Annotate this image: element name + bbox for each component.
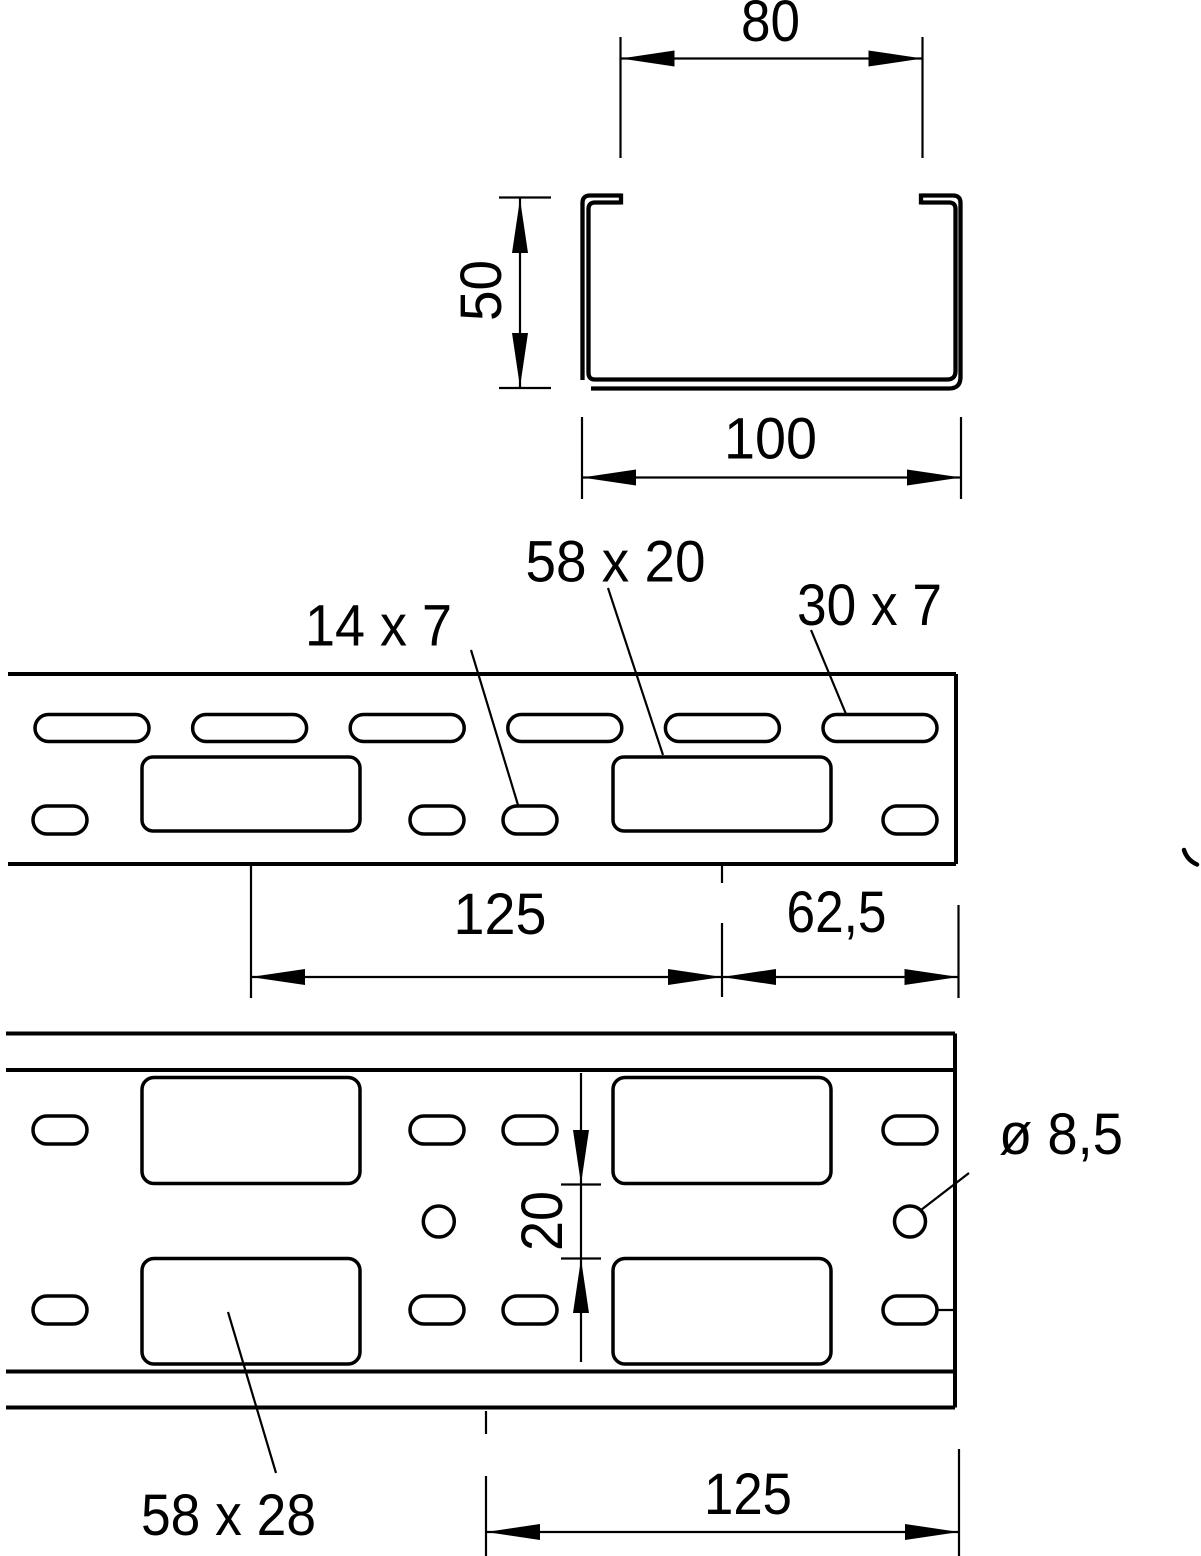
svg-text:20: 20: [510, 1191, 575, 1251]
svg-text:ø 8,5: ø 8,5: [999, 1102, 1123, 1167]
svg-text:58 x 28: 58 x 28: [141, 1483, 316, 1548]
svg-text:14 x 7: 14 x 7: [305, 594, 452, 659]
svg-text:30 x 7: 30 x 7: [797, 573, 942, 638]
svg-text:100: 100: [724, 407, 817, 472]
svg-text:62,5: 62,5: [787, 880, 887, 945]
svg-text:50: 50: [449, 260, 514, 321]
svg-text:125: 125: [454, 882, 547, 947]
svg-text:125: 125: [704, 1462, 792, 1527]
svg-text:80: 80: [741, 0, 800, 54]
svg-text:58 x 20: 58 x 20: [526, 530, 706, 595]
